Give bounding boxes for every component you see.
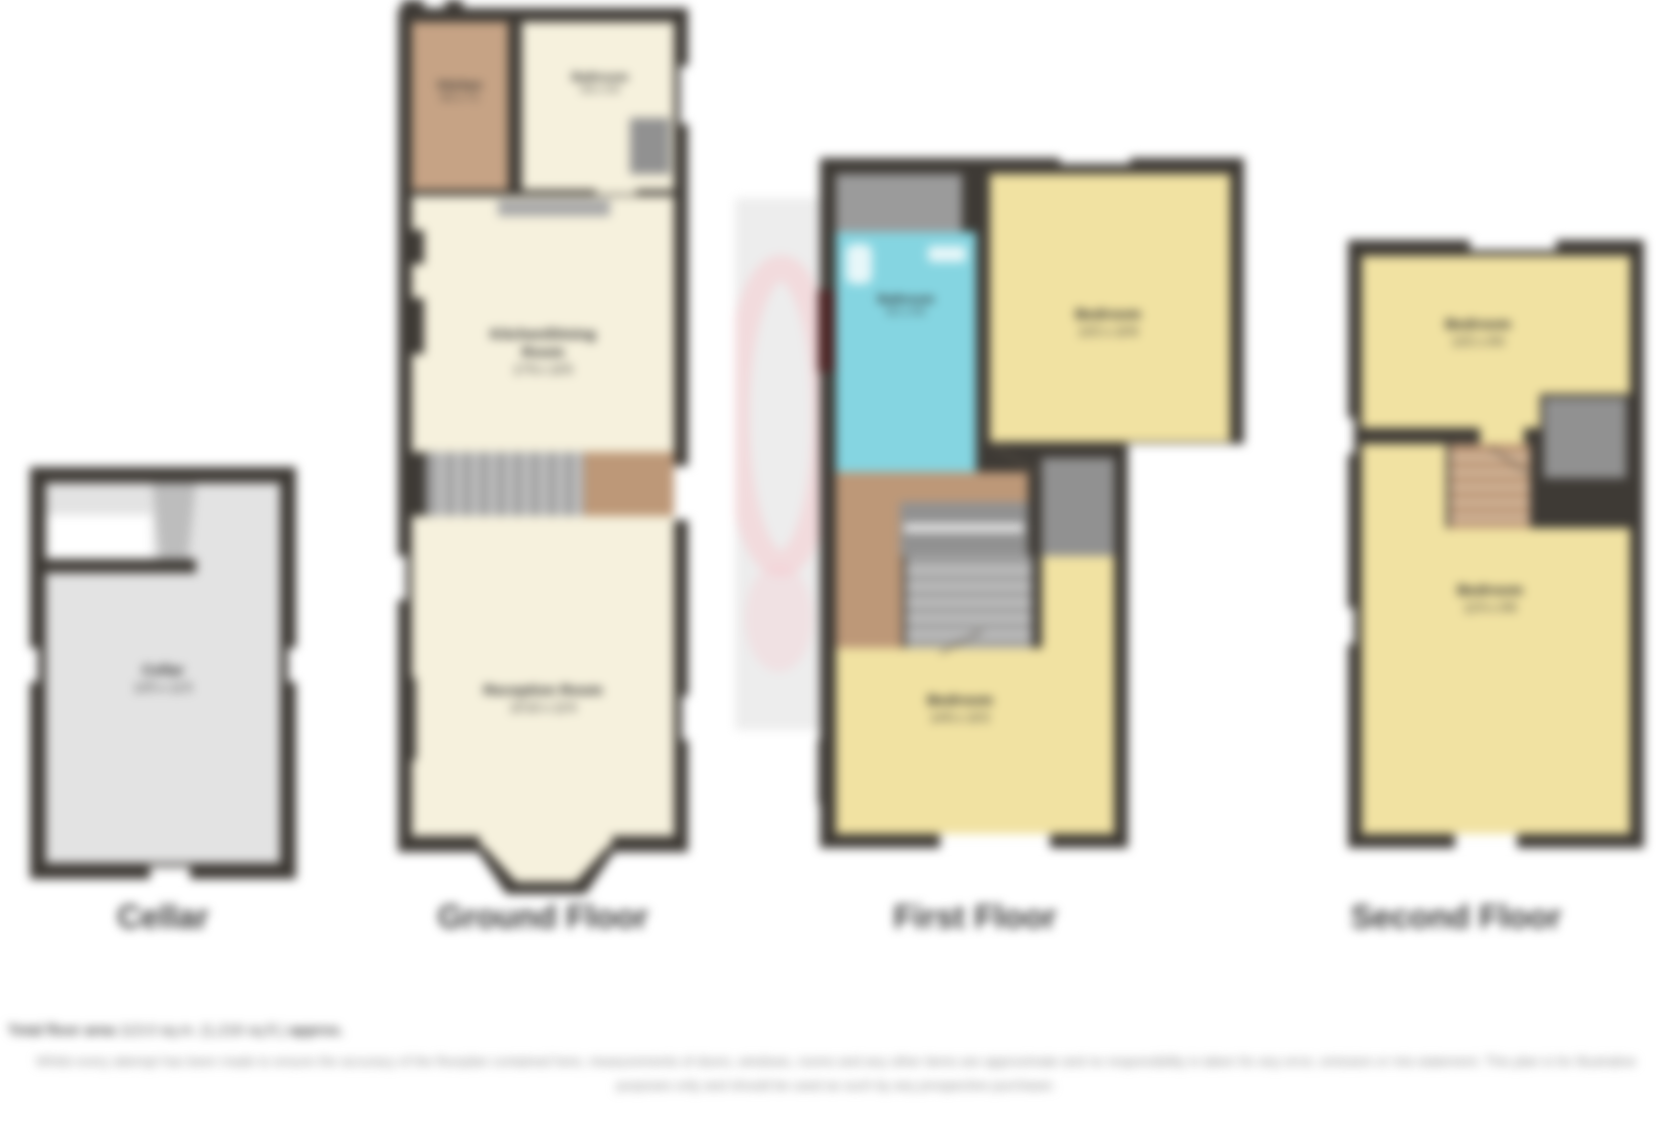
ground-window-rear-right	[680, 66, 692, 124]
ground-kitchen-dims: 9'2 x 7'1	[441, 92, 479, 104]
ground-reception-label: Reception Room 15'10 x 12'4	[412, 682, 674, 716]
cellar-nook-wall	[46, 559, 196, 573]
first-bedroom-front-ext	[1042, 556, 1114, 648]
cellar-room-label: Cellar 13'5 x 11'5	[30, 662, 296, 696]
first-storage	[1042, 458, 1114, 556]
ground-hallway	[584, 452, 674, 516]
ground-top-stub-2	[445, 0, 463, 10]
ground-dining-dims: 17'9 x 10'5	[513, 362, 573, 378]
cellar-room-dims: 13'5 x 11'5	[134, 680, 193, 696]
first-bedroom-rear-dims: 13'2 x 10'9	[1078, 324, 1138, 340]
ground-window-right	[682, 696, 694, 740]
second-bedroom-front-name: Bedroom	[1457, 582, 1523, 600]
ground-door-gap-bath	[596, 178, 636, 194]
cellar-nook	[46, 515, 152, 561]
ground-reception-name: Reception Room	[483, 682, 602, 700]
first-bedroom-front-dims: 14'6 x 10'2	[930, 710, 990, 726]
ground-floor-title: Ground Floor	[398, 898, 688, 936]
blurred-content: Cellar 13'5 x 11'5 Kitchen 9'2 x 7'1 Bat…	[0, 0, 1672, 1144]
first-bedroom-rear-label: Bedroom 13'2 x 10'9	[1008, 306, 1208, 340]
ground-top-stub-1	[402, 0, 424, 10]
second-bedroom-rear-name: Bedroom	[1445, 316, 1511, 334]
first-bedroom-front-name: Bedroom	[927, 692, 993, 710]
ground-front-door-gap	[674, 466, 690, 520]
cellar-room-name: Cellar	[142, 662, 184, 680]
first-door-slab	[818, 290, 836, 372]
ground-window-left	[394, 556, 406, 600]
second-stairs	[1446, 444, 1530, 528]
first-bedroom-front-label: Bedroom 14'6 x 10'2	[850, 692, 1070, 726]
second-door-gap	[1480, 428, 1524, 444]
total-area-suffix: approx.	[289, 1022, 343, 1039]
first-bathroom-dims: 8'2 x 5'6	[887, 306, 925, 318]
ground-dining-label: Kitchen/Dining Room 17'9 x 10'5	[412, 326, 674, 378]
watermark-logo-icon	[735, 198, 823, 730]
first-eaves	[836, 174, 962, 232]
second-floor-title: Second Floor	[1316, 898, 1596, 936]
ground-reception-dims: 15'10 x 12'4	[510, 700, 577, 716]
second-storage	[1540, 394, 1630, 482]
first-wardrobe-line	[904, 524, 1024, 532]
floorplan-sheet: Cellar 13'5 x 11'5 Kitchen 9'2 x 7'1 Bat…	[0, 0, 1672, 1144]
ground-kitchen-label: Kitchen 9'2 x 7'1	[412, 78, 508, 104]
total-floor-area: Total floor area 113.0 sq.m. (1,216 sq.f…	[8, 1022, 343, 1039]
ground-reception-room	[412, 516, 674, 836]
second-bedroom-front	[1362, 528, 1630, 834]
total-area-prefix: Total floor area	[8, 1022, 115, 1039]
total-area-value: 113.0 sq.m. (1,216 sq.ft.)	[119, 1022, 285, 1039]
ground-stairs	[426, 452, 584, 516]
ground-counter	[498, 200, 610, 216]
second-bedroom-front-label: Bedroom 12'4 x 9'8	[1400, 582, 1580, 616]
watermark-strip	[735, 198, 823, 730]
ground-appliance	[630, 118, 670, 174]
first-chimney	[818, 740, 836, 804]
first-bath-fixture-1	[846, 244, 872, 284]
ground-bathroom-label: Bathroom 6'8 x 5'9	[540, 70, 660, 96]
first-bedroom-front	[836, 648, 1114, 834]
cellar-title: Cellar	[30, 898, 296, 936]
first-floor-title: First Floor	[820, 898, 1130, 936]
second-window-left-2	[1344, 608, 1354, 644]
first-bathroom-name: Bathroom	[878, 292, 935, 306]
cellar-window-bottom	[150, 867, 190, 879]
ground-chimney-1	[412, 230, 424, 264]
first-bedroom-rear-name: Bedroom	[1075, 306, 1141, 324]
first-bathroom-label: Bathroom 8'2 x 5'6	[840, 292, 972, 318]
second-window-top	[1470, 236, 1556, 250]
second-bedroom-rear-dims: 13'2 x 9'0	[1452, 334, 1505, 350]
disclaimer-text: Whilst every attempt has been made to en…	[8, 1050, 1664, 1098]
ground-bathroom-dims: 6'8 x 5'9	[581, 84, 619, 96]
ground-kitchen-name: Kitchen	[438, 78, 482, 92]
ground-dining-name-1: Kitchen/Dining	[490, 326, 596, 344]
second-bedroom-front-dims: 12'4 x 9'8	[1464, 600, 1517, 616]
ground-bathroom-name: Bathroom	[572, 70, 629, 84]
first-bath-fixture-2	[928, 246, 966, 262]
second-window-bottom	[1455, 834, 1517, 848]
first-window-bottom	[940, 834, 1050, 848]
second-bedroom-rear-label: Bedroom 13'2 x 9'0	[1388, 316, 1568, 350]
ground-dining-name-2: Room	[522, 344, 565, 362]
first-stairs	[902, 556, 1032, 648]
first-window-wing-top	[1060, 152, 1130, 164]
ground-dining-room	[412, 196, 674, 452]
second-window-left-1	[1344, 418, 1354, 454]
ground-kitchen	[412, 22, 508, 190]
